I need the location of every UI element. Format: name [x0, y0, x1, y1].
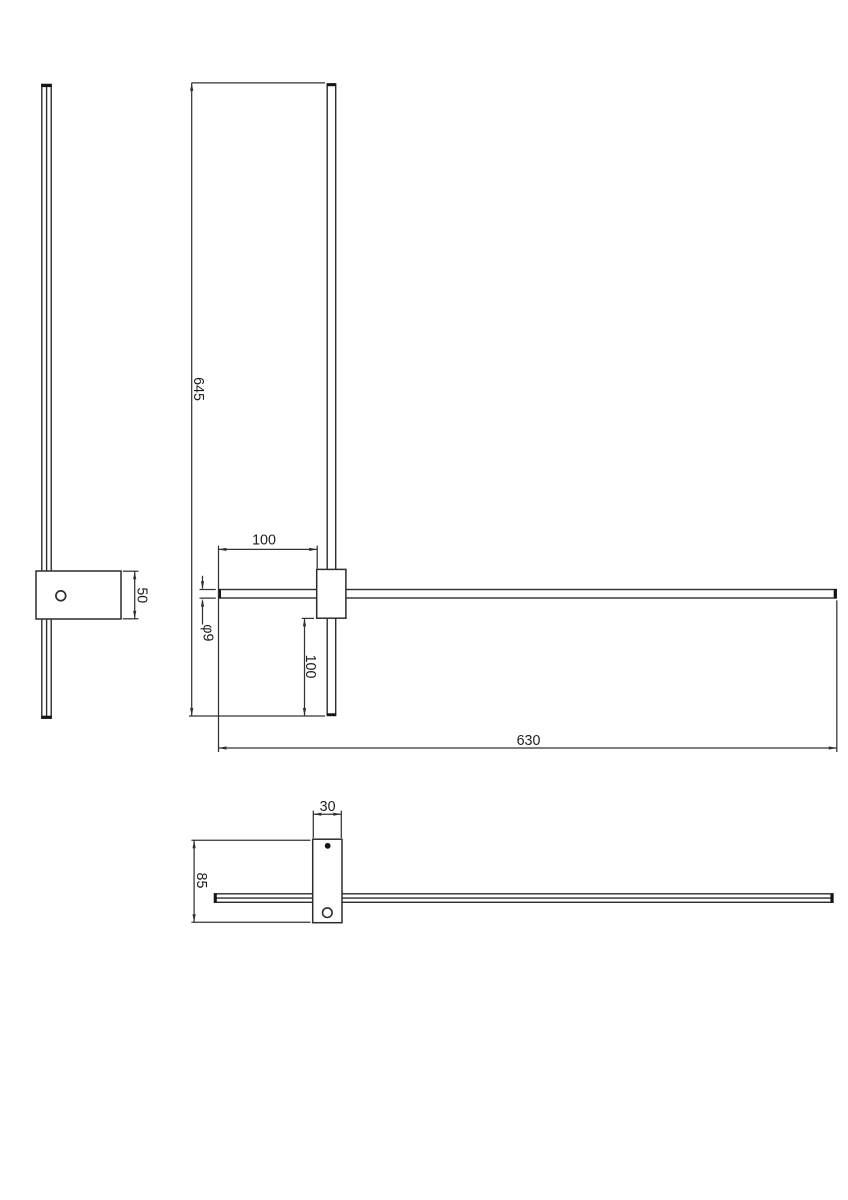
- svg-text:85: 85: [193, 873, 209, 889]
- svg-text:630: 630: [517, 733, 541, 749]
- svg-text:100: 100: [302, 655, 318, 679]
- svg-text:30: 30: [320, 799, 336, 815]
- svg-text:645: 645: [190, 377, 206, 401]
- svg-text:100: 100: [252, 533, 276, 549]
- svg-text:50: 50: [134, 587, 150, 603]
- svg-text:φ9: φ9: [200, 624, 216, 641]
